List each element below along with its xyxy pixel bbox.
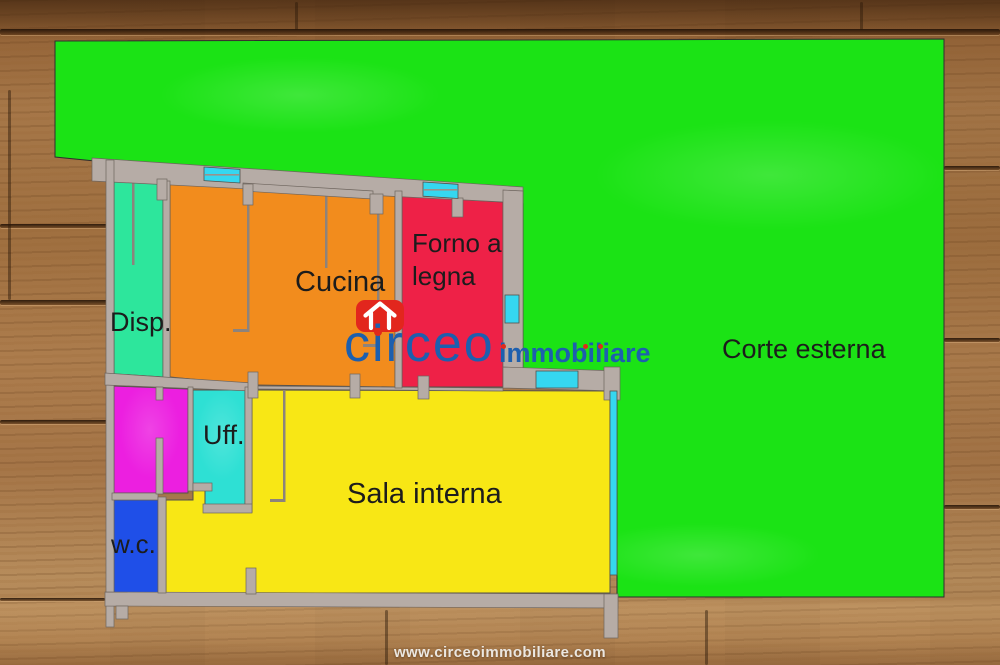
window-mullion	[205, 174, 239, 176]
wall-stub	[156, 387, 163, 400]
window-oven-wall	[505, 295, 519, 323]
wall-office-left	[188, 387, 193, 491]
logo-brand-suffix-text: immobiliare	[499, 340, 651, 367]
wall-wc-top	[112, 493, 158, 500]
logo-i-dot	[501, 344, 506, 349]
door-post	[418, 376, 429, 399]
room-label-forno-a-legna: Forno a legna	[412, 227, 510, 292]
logo-brand-text: circeo	[344, 318, 495, 370]
door-post	[452, 198, 463, 217]
logo-i-dot	[374, 328, 382, 336]
website-url: www.circeoimmobiliare.com	[0, 644, 1000, 661]
wall-stub	[156, 438, 163, 494]
room-label-cucina: Cucina	[295, 264, 385, 300]
door-post	[157, 179, 167, 200]
courtyard-highlight	[595, 120, 945, 230]
courtyard-highlight	[160, 57, 440, 133]
window-hall-right-strip	[610, 391, 617, 575]
room-label-dispensa: Disp.	[110, 306, 172, 340]
wall-stub	[604, 594, 618, 638]
logo-i-dot	[583, 344, 588, 349]
window-hall-topright	[536, 371, 578, 388]
wall-stub	[246, 568, 256, 594]
wall-pantry-divider	[163, 181, 170, 379]
pink-room-highlight	[120, 382, 180, 478]
door-post	[350, 374, 360, 398]
door-post	[248, 372, 258, 398]
door-post	[370, 194, 383, 214]
room-label-sala-interna: Sala interna	[347, 476, 502, 512]
room-label-corte-esterna: Corte esterna	[722, 333, 886, 367]
wall-wc-right	[158, 497, 166, 593]
wall-office-bottom2	[203, 504, 252, 513]
pantry-area	[114, 180, 163, 377]
wall-stub	[116, 606, 128, 619]
real-estate-floorplan-image: Disp. Cucina Forno a legna Uff. w.c. Sal…	[0, 0, 1000, 665]
wall-office-bottom1	[193, 483, 212, 491]
room-label-ufficio: Uff.	[203, 419, 245, 453]
wall-office-right	[245, 387, 252, 512]
wall-bottom	[105, 592, 618, 608]
door-post	[243, 184, 253, 205]
window-mullion	[424, 189, 457, 191]
room-label-wc: w.c.	[111, 528, 156, 561]
logo-i-dot	[598, 344, 603, 349]
